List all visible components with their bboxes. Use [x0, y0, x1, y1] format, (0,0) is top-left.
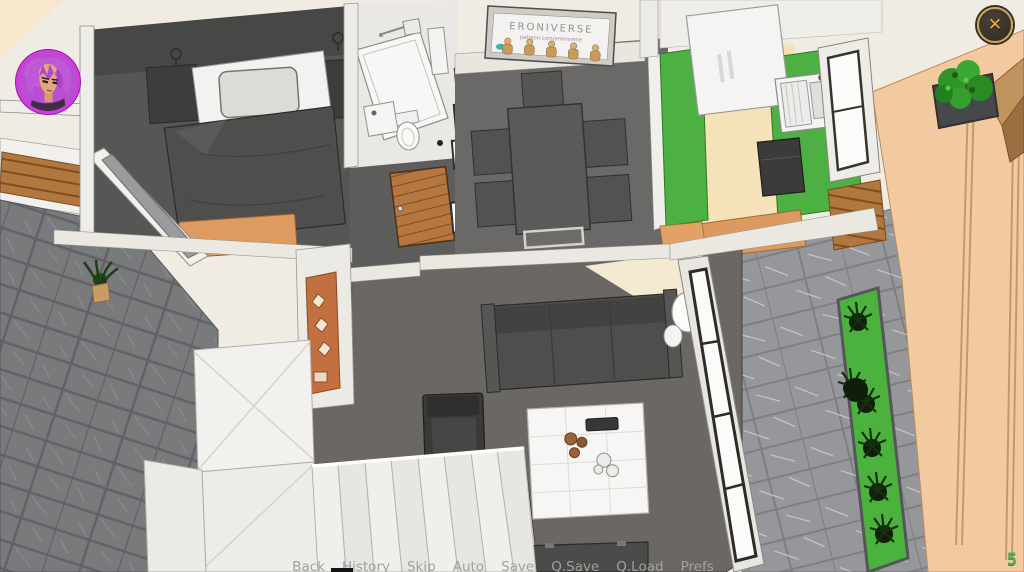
bathroom: [344, 0, 458, 168]
avatar-portrait: [19, 53, 77, 111]
stair-side-wall: [144, 460, 206, 572]
dining-chair: [475, 181, 516, 228]
plate: [569, 447, 580, 458]
dining-chair: [587, 174, 632, 223]
remote-control: [586, 417, 619, 431]
dining-chair: [521, 71, 563, 110]
menu-auto[interactable]: Auto: [453, 559, 484, 572]
stove: [757, 138, 804, 196]
time-counter: 5: [1007, 550, 1017, 570]
dining-table: [508, 104, 591, 235]
wooden-door: [390, 167, 455, 247]
game-screen: ERONIVERSE patreon.com/eroniverse: [0, 0, 1024, 572]
stair-steps: [312, 448, 536, 572]
plate: [564, 433, 577, 446]
bedroom-left-wall: [80, 26, 94, 240]
menu-qload[interactable]: Q.Load: [616, 559, 663, 572]
bedroom: [80, 6, 356, 266]
dining-bench: [524, 228, 583, 248]
bathroom-sink: [364, 102, 399, 137]
menu-prefs[interactable]: Prefs: [681, 559, 714, 572]
cup: [594, 465, 603, 474]
close-button[interactable]: ✕: [977, 7, 1013, 43]
cup: [606, 464, 619, 477]
menu-back[interactable]: Back: [292, 559, 325, 572]
coffee-table: [527, 403, 649, 519]
plate: [577, 437, 588, 448]
close-icon: ✕: [988, 17, 1002, 34]
nightstand-left: [146, 64, 200, 123]
menu-save[interactable]: Save: [501, 559, 534, 572]
apartment-map: ERONIVERSE patreon.com/eroniverse: [0, 0, 1024, 572]
floor-drain: [437, 140, 443, 146]
dining-room: [455, 38, 668, 272]
dining-chair: [583, 119, 628, 168]
dining-chair: [471, 129, 512, 176]
kitchen-dining-wall: [640, 0, 658, 58]
menu-qsave[interactable]: Q.Save: [551, 559, 599, 572]
fridge: [686, 5, 790, 115]
avatar-button[interactable]: [16, 50, 80, 114]
sofa: [481, 289, 683, 392]
poster: ERONIVERSE patreon.com/eroniverse: [485, 6, 616, 66]
menu-skip[interactable]: Skip: [407, 559, 436, 572]
quick-menu: Back History Skip Auto Save Q.Save Q.Loa…: [0, 559, 1006, 572]
bathroom-wall: [344, 3, 358, 168]
back-underline: [331, 568, 353, 572]
